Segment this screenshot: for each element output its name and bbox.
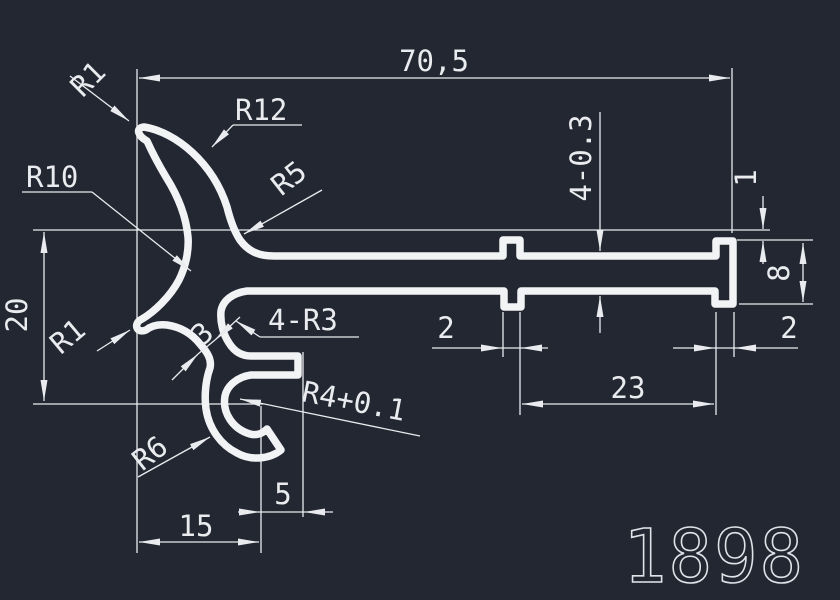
leader-4r3 bbox=[236, 321, 260, 337]
dim-end-block-width: 2 bbox=[780, 311, 797, 345]
radius-label-r4: R4+0.1 bbox=[299, 375, 408, 428]
leader-r1-bottom bbox=[97, 330, 130, 351]
dim-bar-thickness: 4-0.3 bbox=[564, 114, 598, 201]
radius-label-r6: R6 bbox=[126, 429, 174, 477]
radius-label-r1-top: R1 bbox=[64, 55, 113, 104]
profile-outline bbox=[137, 127, 733, 458]
dim-overall-width: 70,5 bbox=[399, 44, 469, 78]
radius-label-r12: R12 bbox=[235, 93, 287, 127]
dim-line-wall-a bbox=[172, 354, 198, 380]
cad-drawing-canvas: 70,5 20 1 8 4-0.3 2 23 2 15 bbox=[0, 0, 840, 600]
dim-right-step: 1 bbox=[729, 169, 763, 186]
radius-label-r1-bottom: R1 bbox=[43, 312, 92, 360]
dim-teeth-spacing: 23 bbox=[611, 371, 646, 405]
leader-r12 bbox=[212, 125, 233, 147]
radius-labels: R1 R12 R10 R5 R1 4-R3 R4+0.1 R6 bbox=[22, 55, 420, 478]
cad-drawing: 70,5 20 1 8 4-0.3 2 23 2 15 bbox=[0, 0, 840, 600]
dim-left-tooth-width: 2 bbox=[437, 311, 454, 345]
part-number: 1898 bbox=[623, 514, 805, 600]
dim-hook-horizontal: 15 bbox=[179, 509, 214, 543]
dim-left-height: 20 bbox=[0, 298, 34, 333]
dim-wall-thickness: 3 bbox=[184, 315, 220, 352]
dim-finger-gap: 5 bbox=[274, 477, 291, 511]
radius-label-4r3: 4-R3 bbox=[268, 303, 338, 337]
radius-label-r5: R5 bbox=[265, 154, 313, 202]
dim-end-height: 8 bbox=[762, 264, 796, 281]
radius-label-r10: R10 bbox=[26, 160, 78, 194]
